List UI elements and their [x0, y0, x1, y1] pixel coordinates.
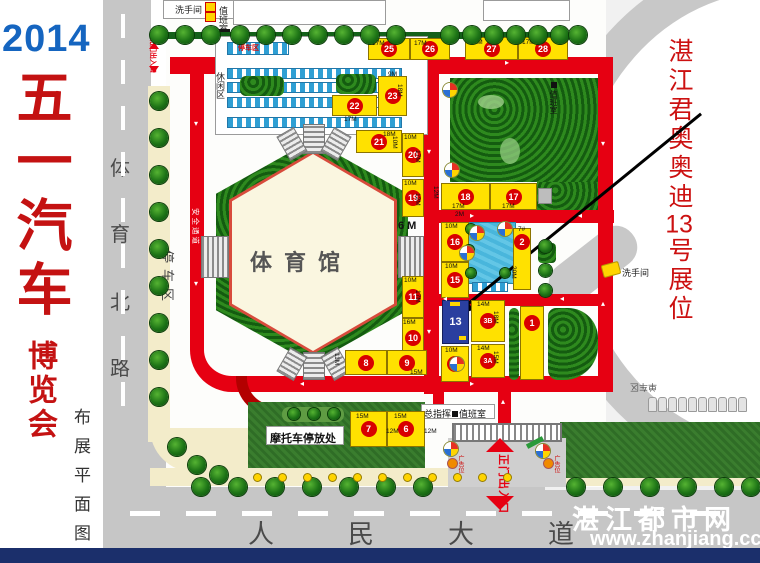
street-tree [192, 478, 210, 496]
decorative-ball-icon [444, 442, 458, 456]
annotation-line2: 13 [665, 212, 693, 237]
street-tree [231, 26, 249, 44]
street-tree [150, 129, 168, 147]
safety-lane-label: 安全通道 [190, 208, 201, 246]
route-arrow: ▸ [470, 380, 474, 388]
sidewalk-dot [303, 473, 312, 482]
decorative-ball-icon [498, 222, 512, 236]
decorative-ball-icon [445, 163, 459, 177]
booth-number: 13 [449, 316, 461, 328]
lane-dash-west [121, 152, 125, 176]
garden-light-blob-1 [478, 95, 504, 109]
street-tree [150, 166, 168, 184]
ad-label-left: 广告位 [457, 455, 463, 473]
dim-label-10M: 10M [404, 134, 417, 141]
bike-rack-post [678, 397, 687, 412]
booth-1: 1 [520, 306, 544, 380]
dim-label-10M: 10M [404, 277, 417, 284]
dim-label-15M: 15M [394, 413, 407, 420]
decorative-ball-icon [443, 83, 457, 97]
dim-label-17M: 17M [344, 116, 357, 123]
dim-label-10M: 10M [391, 136, 398, 149]
dim-label-17M: 17M [452, 203, 465, 210]
street-tree [150, 277, 168, 295]
booth-number: 6 [398, 421, 414, 437]
street-tree [529, 26, 547, 44]
street-tree [567, 478, 585, 496]
road-width-6m: 6 M [398, 220, 416, 232]
title-note: 布展平面图 [72, 408, 89, 553]
sidewalk-dot [453, 473, 462, 482]
street-tree [387, 26, 405, 44]
street-tree [150, 92, 168, 110]
street-tree [551, 26, 569, 44]
west-road-name-3: 北 [110, 286, 130, 315]
street-tree [150, 388, 168, 406]
street-tree [288, 408, 300, 420]
sidewalk-dot [428, 473, 437, 482]
building-top-center [233, 0, 386, 25]
duty-room-right-label: 值班室 [549, 90, 557, 114]
bike-rack-post [738, 397, 747, 412]
route-arrow: ◂ [578, 212, 582, 220]
route-arrow: ▾ [601, 140, 605, 148]
lane-dash-west [121, 198, 125, 222]
lane-dash-west [121, 336, 125, 360]
route-arrow: ▸ [505, 59, 509, 67]
command-building-square [452, 411, 458, 417]
route-arrow: ▾ [427, 328, 431, 336]
street-tree [463, 26, 481, 44]
hydrant-tag-2 [205, 12, 216, 22]
route-arrow: ▸ [470, 212, 474, 220]
bike-rack-post [728, 397, 737, 412]
street-tree [328, 408, 340, 420]
bike-area-label: 单车区 [630, 381, 657, 394]
street-tree [678, 478, 696, 496]
duty-room-right-square [551, 82, 557, 88]
booth-8: 8 [345, 350, 387, 375]
street-tree [441, 26, 459, 44]
bottom-strip [0, 548, 760, 563]
dim-label-10M: 10M [404, 180, 417, 187]
lane-dash-west [121, 14, 125, 38]
street-tree [500, 268, 510, 278]
booth-number: 1 [524, 315, 540, 331]
decorative-ball-icon [470, 226, 484, 240]
lane-dash-south [522, 511, 552, 516]
lane-dash-west [121, 290, 125, 314]
route-arrow: ◂ [300, 380, 304, 388]
hedge-column [509, 308, 519, 380]
hydrant-tag-1 [205, 2, 216, 12]
lane-dash-west [121, 244, 125, 268]
booth-2: 2 [513, 228, 531, 290]
restroom-right-label: 洗手间 [622, 266, 649, 279]
stadium-stairs-left [201, 236, 229, 278]
booth-number: 8 [358, 355, 374, 371]
lane-dash-south [354, 511, 384, 516]
duty-gate-label: 值班室 [459, 409, 486, 419]
canopy-parking-label: 停车区 [238, 43, 259, 53]
street-tree [150, 203, 168, 221]
south-road-name-4: 道 [548, 514, 574, 551]
lane-dash-south [130, 511, 160, 516]
dim-label-12M: 12M [386, 428, 399, 435]
annotation-text: 湛江君奥奥迪13号展位 [666, 38, 691, 324]
sidewalk-dot [328, 473, 337, 482]
street-tree [604, 478, 622, 496]
street-tree [539, 284, 552, 297]
title-main: 五一汽车 [12, 68, 68, 324]
lane-dash-south [466, 511, 496, 516]
title-year: 2014 [2, 18, 91, 61]
lane-dash-south [578, 511, 608, 516]
lane-dash-south [690, 511, 720, 516]
lane-dash-south [410, 511, 440, 516]
street-tree [202, 26, 220, 44]
street-tree [210, 466, 228, 484]
street-tree [257, 26, 275, 44]
bike-rack-post [708, 397, 717, 412]
dim-label-7#: 7# [518, 226, 525, 233]
street-tree [466, 268, 476, 278]
decorative-ball-icon [460, 246, 474, 260]
street-tree [168, 438, 186, 456]
street-tree [539, 240, 552, 253]
bike-rack-post [658, 397, 667, 412]
dim-label-18M: 18M [396, 84, 403, 97]
booth-number: 15 [447, 272, 463, 288]
bike-rack-post [648, 397, 657, 412]
sidewalk-dot [403, 473, 412, 482]
expo-site-map: 洗手间 值班室 停车区 休闲区 值班室 体育馆 [0, 0, 760, 563]
dim-label-14M: 14M [477, 345, 490, 352]
dim-label-17M: 17M [502, 203, 515, 210]
decorative-ball-icon [536, 444, 550, 458]
route-arrow: ◂ [560, 295, 564, 303]
dim-label-12M: 12M [432, 186, 439, 199]
garden-light-blob-2 [500, 138, 520, 164]
route-arrow: ▴ [501, 398, 505, 406]
west-road [103, 0, 151, 500]
booth-number: 10 [405, 330, 421, 346]
sidewalk-dot [278, 473, 287, 482]
sidewalk-dot [503, 473, 512, 482]
lane-dash-south [242, 511, 272, 516]
lane-dash-south [298, 511, 328, 516]
route-right [598, 74, 613, 392]
street-tree [641, 478, 659, 496]
sidewalk-dot [378, 473, 387, 482]
dim-label-15M: 15M [492, 351, 499, 364]
route-arrow: ▾ [194, 280, 198, 288]
dim-label-17M: 17M [414, 150, 421, 163]
street-tree [150, 314, 168, 332]
booth13-tag-top [450, 302, 460, 306]
dim-label-16M: 16M [403, 319, 416, 326]
booth-number: 22 [347, 98, 363, 114]
bike-rack-post [688, 397, 697, 412]
booth-number: 2 [514, 234, 530, 250]
leisure-label: 休闲区 [215, 72, 224, 99]
booth-18: 18 [441, 183, 490, 210]
stadium-label: 体育馆 [250, 245, 352, 277]
moto-label: 摩托车停放处 [270, 430, 336, 446]
street-tree [539, 264, 552, 277]
command-label-text: 总指挥 [424, 409, 451, 419]
street-tree [229, 478, 247, 496]
building-top-right [483, 0, 570, 21]
booth13-tag-bottom [459, 336, 466, 340]
street-tree [283, 26, 301, 44]
command-label: 总指挥值班室 [424, 407, 486, 420]
title-sub: 博览会 [24, 340, 54, 442]
street-tree [150, 351, 168, 369]
leisure-hedge-1 [240, 76, 284, 96]
lane-dash-south [634, 511, 664, 516]
route-arrow: ▴ [601, 300, 605, 308]
bike-rack-post [668, 397, 677, 412]
main-gate-arrow-up [486, 438, 514, 452]
street-tree [188, 456, 206, 474]
se-lawn [560, 422, 760, 478]
dim-label-12M: 12M [414, 193, 421, 206]
dim-label-11M: 11M [333, 353, 340, 365]
ne-garden [450, 78, 598, 182]
dim-label-17M: 17M [414, 40, 427, 47]
lane-dash-west [121, 106, 125, 130]
lane-dash-south [186, 511, 216, 516]
west-road-name-1: 体 [110, 152, 130, 181]
bike-rack-post [718, 397, 727, 412]
decorative-ball-icon [450, 357, 464, 371]
dim-label-15M: 15M [410, 369, 423, 376]
street-tree [507, 26, 525, 44]
route-arrow: ◂ [443, 295, 447, 303]
dim-label-2M: 2M [455, 211, 464, 218]
north-gate-arrow-2 [149, 66, 159, 73]
dim-label-9M: 9M [388, 71, 397, 78]
booth-22: 22 [332, 95, 377, 116]
street-tree [361, 26, 379, 44]
sidewalk-dot [478, 473, 487, 482]
route-arrow: ▾ [194, 120, 198, 128]
leisure-hedge-2 [336, 74, 376, 94]
dim-label-12M: 12M [424, 428, 437, 435]
street-tree [742, 478, 760, 496]
street-tree [715, 478, 733, 496]
booth-number: 7 [361, 421, 377, 437]
route-left [190, 57, 204, 347]
street-tree [485, 26, 503, 44]
sidewalk-dot [253, 473, 262, 482]
sidewalk-dot [353, 473, 362, 482]
ad-label-right: 广告位 [553, 455, 559, 473]
lane-dash-west [121, 382, 125, 406]
dim-label-14M: 14M [477, 301, 490, 308]
dim-label-18M: 18M [492, 311, 499, 324]
bike-rack-post [698, 397, 707, 412]
route-arrow: ◂ [252, 59, 256, 67]
dim-label-17M: 17M [414, 290, 421, 303]
annotation-line3: 号展位 [665, 237, 693, 324]
west-road-name-4: 路 [110, 352, 130, 381]
street-tree [150, 240, 168, 258]
dim-label-10M: 10M [445, 347, 458, 354]
stadium-stairs-right [398, 236, 424, 278]
garden-gray-square [538, 188, 552, 204]
restroom-top-label: 洗手间 [175, 3, 202, 16]
street-tree [309, 26, 327, 44]
street-tree [335, 26, 353, 44]
lane-dash-west [121, 60, 125, 84]
dim-label-10M: 10M [445, 223, 458, 230]
dim-label-10M: 10M [445, 263, 458, 270]
dim-label-20M: 20M [510, 266, 517, 279]
main-gate-arrow-down [486, 496, 514, 510]
street-tree [150, 26, 168, 44]
street-tree [176, 26, 194, 44]
south-road-name-2: 民 [348, 514, 374, 551]
route-arrow: ▾ [427, 148, 431, 156]
street-tree [308, 408, 320, 420]
south-road-name-1: 人 [248, 514, 274, 551]
street-tree [569, 26, 587, 44]
dim-label-15M: 15M [356, 413, 369, 420]
west-road-name-2: 育 [110, 218, 130, 247]
south-road-name-3: 大 [448, 514, 474, 551]
